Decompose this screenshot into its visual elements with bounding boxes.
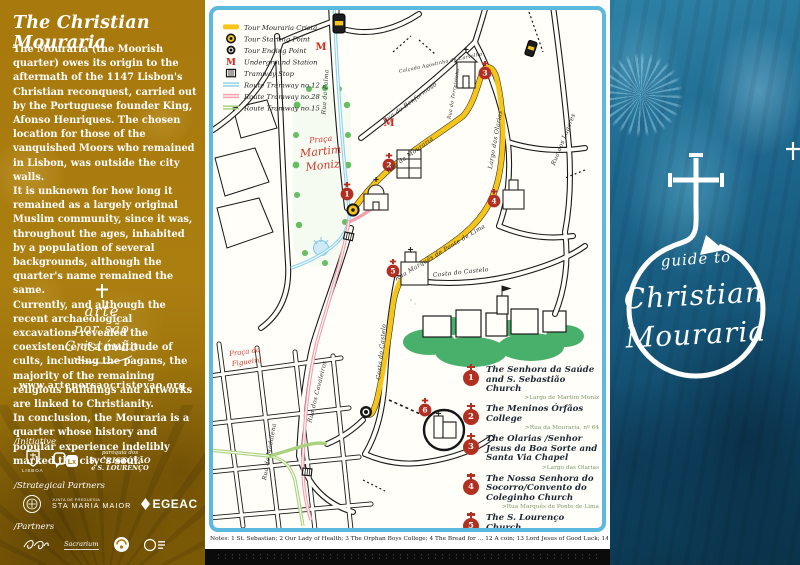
cross-icon (96, 284, 108, 298)
poi-name: The Meninos Órfãos College (486, 405, 599, 424)
emblem-word: Cristóvão (65, 339, 139, 355)
svg-text:Tour Starting Point: Tour Starting Point (244, 36, 310, 44)
list-item: 4 The Nossa Senhora do Socorro/Convento … (463, 475, 599, 510)
small-seal-logo (144, 538, 166, 552)
legend-tour-route: Tour Mouraria Cristã (223, 24, 317, 32)
poi-pin-3: 3 (463, 439, 479, 455)
intro-paragraph: The Mouraria (the Moorish quarter) owes … (13, 43, 198, 185)
guide-emblem: guide to Christian Mouraria (610, 140, 800, 410)
cover-panel: guide to Christian Mouraria (610, 0, 800, 565)
poi-list: 1 The Senhora da Saúde and S. Sebastião … (463, 366, 599, 532)
initiative-logos: LISBOA Lx paróquia dos S. CRISTÓVÃO e S.… (22, 450, 201, 473)
poi-address: >Largo de Martim Moniz (486, 395, 599, 401)
street-label: Costa do Castelo (433, 266, 490, 279)
svg-text:1: 1 (344, 190, 349, 199)
poi-name: The Senhora da Saúde and S. Sebastião Ch… (486, 366, 599, 395)
ornate-script-logo (22, 537, 50, 553)
metro-m-icon: M (226, 58, 236, 68)
map-marker-4: 4 (488, 189, 501, 207)
saude-church-sketch (364, 177, 388, 210)
castle-flag (502, 286, 510, 296)
round-partner-logo (113, 536, 130, 553)
brochure-page: The Christian Mouraria The Mouraria (the… (0, 0, 800, 565)
arte-por-sao-cristovao-logo: arte por são Cristóvão (52, 283, 152, 371)
guide-to-text: guide to (660, 248, 731, 271)
svg-text:Route Tramway no.15: Route Tramway no.15 (243, 105, 320, 113)
poi-name: The Olarias /Senhor Jesus da Boa Sorte a… (486, 435, 599, 464)
street-label: Rua do Terreirinho (446, 68, 461, 121)
svg-text:Tour Ending Point: Tour Ending Point (244, 47, 307, 55)
poi-pin-4: 4 (463, 479, 479, 495)
monstrance-sunburst-decoration (610, 52, 684, 138)
strategical-partners-label: /Strategical Partners (14, 481, 105, 491)
tour-end-point (360, 406, 372, 418)
paroquia-logo: paróquia dos S. CRISTÓVÃO e S. LOURENÇO (89, 451, 150, 471)
map-marker-3: 3 (479, 61, 492, 79)
svg-text:6: 6 (422, 406, 427, 415)
poi-name: The Nossa Senhora do Socorro/Convento do… (486, 475, 599, 504)
poi-pin-1: 1 (463, 370, 479, 386)
intro-text: The Mouraria (the Moorish quarter) owes … (13, 43, 198, 469)
tour-start-point (347, 204, 358, 215)
lx-participativo-logo: Lx (53, 452, 79, 472)
map-marker-6: 6 (419, 398, 432, 416)
svg-text:4: 4 (491, 197, 496, 206)
legend-tram-stop: Tramway Stop (227, 69, 295, 78)
small-cross-icon (786, 142, 800, 160)
intro-paragraph: It is unknown for how long it remained a… (13, 185, 198, 299)
left-gold-panel: The Christian Mouraria The Mouraria (the… (0, 0, 205, 565)
street-label: Rua da Madalena (261, 423, 278, 482)
poi-name: The S. Lourenço Church (486, 514, 599, 532)
poi-pin-5: 5 (463, 518, 479, 532)
tram-icon (524, 40, 537, 57)
list-item: 2 The Meninos Órfãos College >Rua da Mou… (463, 405, 599, 431)
legend-start-point: Tour Starting Point (227, 34, 311, 43)
junta-freguesia-logo: JUNTA DE FREGUESIA STA MARIA MAIOR (52, 498, 131, 510)
metro-station-icon: M (315, 42, 326, 53)
svg-text:3: 3 (482, 69, 487, 78)
legend-underground: M Underground Station (226, 58, 318, 68)
poi-pin-2: 2 (463, 409, 479, 425)
map-frame: M M (209, 6, 606, 532)
map-panel: M M (205, 0, 610, 565)
emblem-word: arte (84, 302, 119, 320)
cross-stem-curl (673, 204, 696, 246)
svg-text:Route Tramway no.12: Route Tramway no.12 (243, 82, 320, 90)
list-item: 3 The Olarias /Senhor Jesus da Boa Sorte… (463, 435, 599, 470)
credits-bar (205, 549, 610, 565)
svg-text:Underground Station: Underground Station (244, 59, 318, 67)
sacrarium-logo: Sacrarium (64, 540, 99, 550)
svg-text:Tramway Stop: Tramway Stop (244, 70, 295, 78)
lisboa-crest-icon (25, 450, 41, 467)
legend-tram-28: Route Tramway no.28 (223, 93, 320, 101)
lisboa-logo: LISBOA (22, 450, 43, 473)
partners-logos: Sacrarium (22, 536, 201, 553)
egeac-logo: EGEAC (141, 497, 197, 511)
speech-bubbles-icon: Lx (53, 452, 79, 472)
street-label: Rua do Benformoso (381, 81, 438, 125)
tram-stop-icon (344, 232, 354, 241)
cross-icon (670, 155, 722, 204)
street-label: Rua dos Lagares (550, 112, 578, 167)
christian-text: Christian (623, 275, 765, 315)
egeac-mark-icon (141, 498, 150, 510)
list-item: 1 The Senhora da Saúde and S. Sebastião … (463, 366, 599, 401)
svg-text:Tour Mouraria Cristã: Tour Mouraria Cristã (244, 24, 317, 32)
initiative-label: /Initiative (14, 437, 56, 447)
poi-address: >Largo das Olarias (486, 465, 599, 471)
svg-text:5: 5 (390, 267, 395, 276)
website-url: www.arteporsaocristovao.org (0, 380, 205, 391)
legend-end-point: Tour Ending Point (227, 46, 307, 55)
emblem-swash (74, 356, 132, 363)
emblem-word: por são (74, 322, 130, 337)
seal-icon (22, 494, 42, 514)
mouraria-text: Mouraria (624, 314, 767, 354)
footnotes: Notes: 1 St. Sebastian; 2 Our Lady of He… (210, 536, 608, 542)
tram-stop-icon (302, 468, 312, 476)
poi-address: >Rua Marquês de Ponte de Lima (486, 504, 599, 510)
partners-label: /Partners (14, 522, 54, 532)
svg-text:Lx: Lx (68, 459, 76, 466)
poi-address: >Rua da Mouraria, nº 64 (486, 425, 599, 431)
list-item: 5 The S. Lourenço Church >Rua Marquês de… (463, 514, 599, 532)
legend-tram-12: Route Tramway no.12 (223, 82, 320, 90)
svg-text:Route Tramway no.28: Route Tramway no.28 (243, 93, 320, 101)
strategical-logos: JUNTA DE FREGUESIA STA MARIA MAIOR EGEAC (22, 494, 201, 514)
